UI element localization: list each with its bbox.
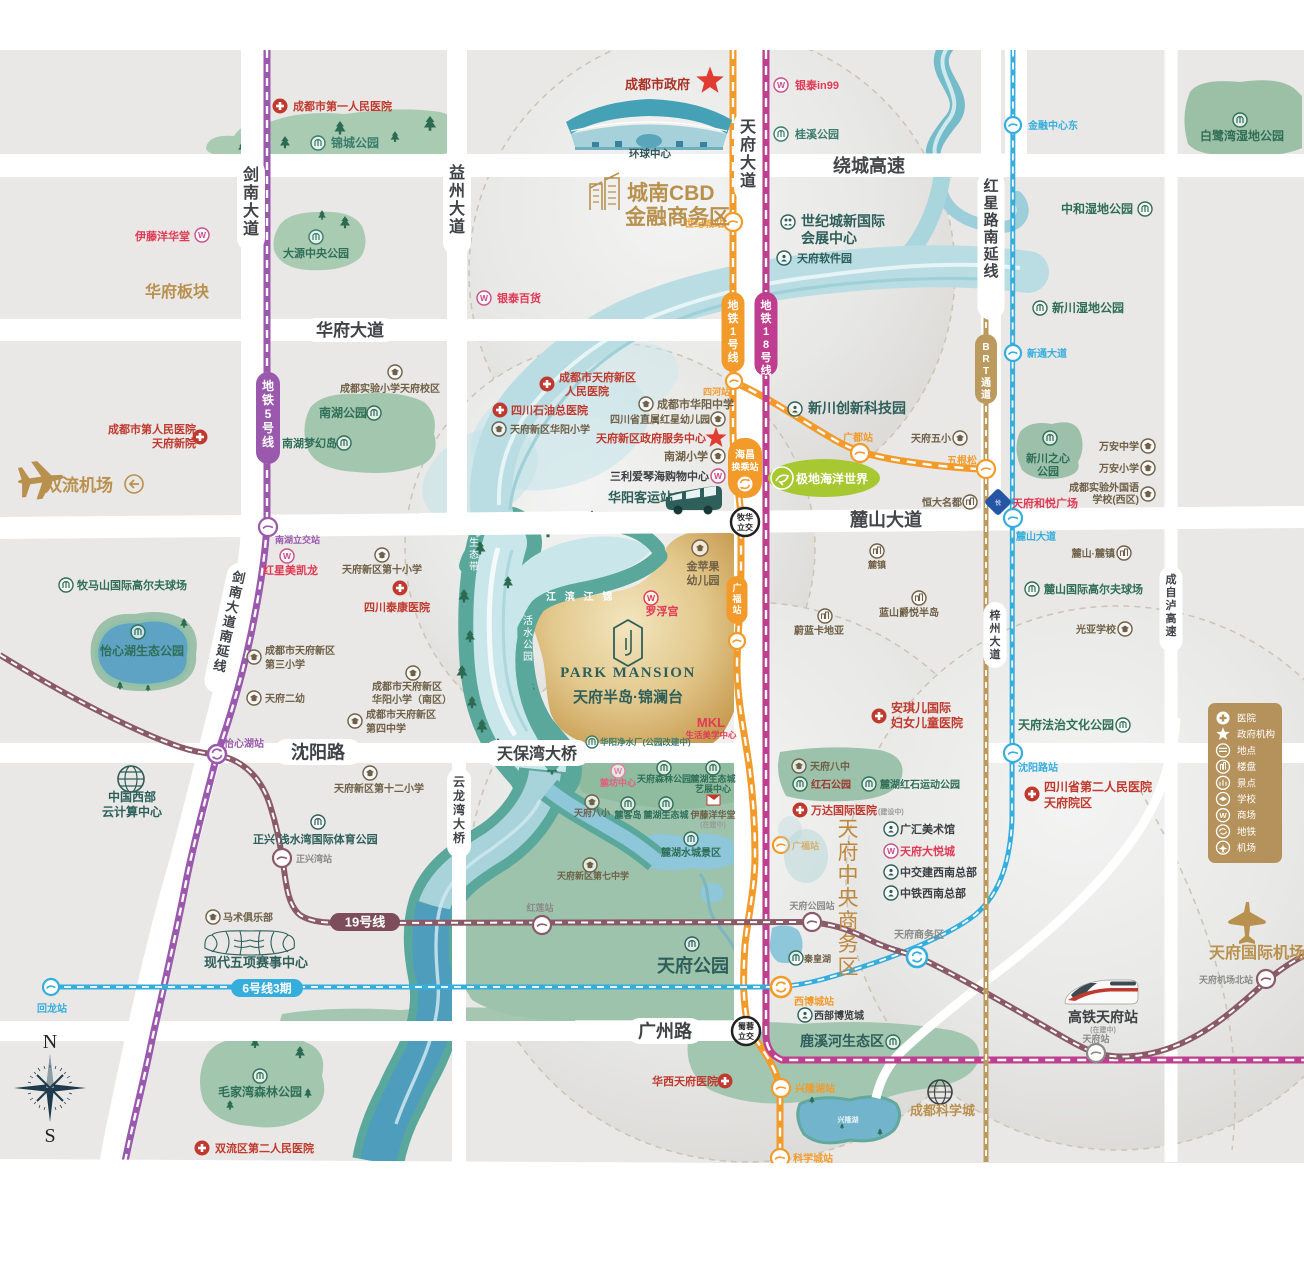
svg-text:天府新院: 天府新院 [152,436,196,450]
svg-text:新川创新科技园: 新川创新科技园 [808,400,906,416]
svg-text:W: W [647,593,656,603]
svg-text:19号线: 19号线 [345,915,385,930]
svg-text:成都实验外国语: 成都实验外国语 [1069,481,1139,494]
svg-text:怡心湖站: 怡心湖站 [224,737,264,750]
svg-text:罗浮宫: 罗浮宫 [646,604,679,618]
svg-text:桂溪公园: 桂溪公园 [794,127,839,141]
svg-text:天府五小: 天府五小 [911,432,951,445]
svg-text:广州路: 广州路 [638,1020,693,1041]
svg-text:毛家湾森林公园: 毛家湾森林公园 [218,1084,302,1099]
svg-text:机场: 机场 [1237,842,1256,854]
svg-text:立交: 立交 [738,1031,754,1041]
svg-text:天府新区第十二小学: 天府新区第十二小学 [334,782,424,795]
svg-text:江 滨 江 锦: 江 滨 江 锦 [546,590,615,603]
svg-text:成都市政府: 成都市政府 [625,77,690,92]
svg-text:天府国际机场: 天府国际机场 [1209,943,1304,962]
svg-text:蓝山爵悦半岛: 蓝山爵悦半岛 [879,606,939,619]
svg-text:成自泸高速: 成自泸高速 [1166,572,1177,638]
svg-text:麓坊中心: 麓坊中心 [599,777,636,788]
svg-text:MKL: MKL [697,715,725,730]
svg-text:天府二幼: 天府二幼 [265,692,305,705]
svg-text:回龙站: 回龙站 [37,1002,67,1015]
svg-text:(在建中): (在建中) [700,820,726,829]
svg-text:金融中心东: 金融中心东 [1027,119,1078,132]
svg-text:麓湖生态城: 麓湖生态城 [689,773,735,784]
svg-text:生态带: 生态带 [469,536,479,573]
svg-text:成都市天府新区: 成都市天府新区 [372,680,442,693]
svg-text:S: S [44,1125,55,1147]
svg-text:第四中学: 第四中学 [366,722,406,735]
svg-text:云计算中心: 云计算中心 [102,804,162,819]
svg-text:环球中心: 环球中心 [629,147,671,160]
svg-text:怡心湖生态公园: 怡心湖生态公园 [100,643,184,658]
svg-text:秦皇湖: 秦皇湖 [803,953,831,964]
svg-text:马术俱乐部: 马术俱乐部 [223,911,273,924]
svg-text:麓山·麓镇: 麓山·麓镇 [1072,547,1115,560]
svg-text:天府院区: 天府院区 [1044,795,1092,810]
svg-text:云龙湾大桥: 云龙湾大桥 [453,775,466,845]
svg-text:中和湿地公园: 中和湿地公园 [1061,201,1133,216]
svg-text:成都市第一人民医院: 成都市第一人民医院 [293,99,392,113]
svg-text:华阳净水厂(公园改建中): 华阳净水厂(公园改建中) [600,737,691,747]
svg-text:商场: 商场 [1237,810,1256,822]
svg-text:学校(西区): 学校(西区) [1092,493,1139,506]
svg-text:中国西部: 中国西部 [108,789,156,804]
svg-text:麓山国际高尔夫球场: 麓山国际高尔夫球场 [1044,582,1143,596]
svg-text:华府大道: 华府大道 [316,320,384,340]
svg-text:医院: 医院 [1237,713,1257,725]
svg-text:悦: 悦 [995,499,1001,507]
svg-text:南湖小学: 南湖小学 [664,449,708,463]
svg-text:金融商务区: 金融商务区 [624,205,730,229]
svg-text:锦城公园: 锦城公园 [331,135,379,150]
svg-text:红星美凯龙: 红星美凯龙 [263,563,318,577]
svg-text:成都市天府新区: 成都市天府新区 [559,370,636,384]
svg-text:W: W [480,293,489,303]
svg-text:红星路南延线: 红星路南延线 [982,177,999,280]
svg-text:天府公园: 天府公园 [657,955,729,976]
svg-text:现代五项赛事中心: 现代五项赛事中心 [204,955,308,970]
svg-text:麓湖红石运动公园: 麓湖红石运动公园 [880,778,960,791]
svg-text:成都科学城: 成都科学城 [910,1103,975,1118]
svg-text:益州大道: 益州大道 [448,163,465,236]
svg-text:天府公园站: 天府公园站 [789,900,834,911]
svg-text:麓湖水城景区: 麓湖水城景区 [661,846,721,859]
svg-text:W: W [614,766,623,776]
svg-text:天府站: 天府站 [1082,1033,1109,1044]
svg-text:沈阳路: 沈阳路 [291,741,346,762]
svg-text:红石公园: 红石公园 [811,778,851,791]
svg-text:双流区第二人民医院: 双流区第二人民医院 [215,1141,314,1155]
svg-text:学校: 学校 [1237,794,1257,806]
svg-text:蜀蓉: 蜀蓉 [738,1021,755,1031]
svg-text:绕城高速: 绕城高速 [833,155,905,176]
svg-text:换乘站: 换乘站 [731,461,758,472]
svg-text:安琪儿国际: 安琪儿国际 [891,700,951,715]
svg-text:天府森林公园: 天府森林公园 [637,773,691,784]
svg-text:正兴湾站: 正兴湾站 [296,853,332,864]
svg-text:广福站: 广福站 [731,582,741,615]
svg-text:W: W [777,80,786,90]
svg-text:牧华: 牧华 [737,512,753,522]
svg-text:梓州大道: 梓州大道 [989,608,1001,661]
svg-text:麓山大道: 麓山大道 [1016,530,1056,543]
svg-text:地铁: 地铁 [1237,826,1257,838]
svg-text:四川泰康医院: 四川泰康医院 [364,600,430,614]
svg-text:生活美学中心: 生活美学中心 [685,730,737,740]
svg-text:楼盘: 楼盘 [1237,761,1257,773]
svg-text:公园: 公园 [1037,465,1059,478]
svg-text:天府软件园: 天府软件园 [797,251,852,265]
svg-text:天府新区第十小学: 天府新区第十小学 [342,563,422,576]
svg-text:中铁西南总部: 中铁西南总部 [900,886,966,900]
svg-text:立交: 立交 [737,522,753,532]
svg-text:天府八小: 天府八小 [574,807,610,818]
svg-text:科学城站: 科学城站 [793,1152,833,1165]
svg-text:华阳小学（南区）: 华阳小学（南区） [372,693,452,706]
svg-text:会展中心: 会展中心 [801,230,857,246]
svg-text:W: W [714,471,723,481]
svg-text:地点: 地点 [1237,745,1257,757]
svg-text:W: W [283,551,292,561]
svg-text:万安中学: 万安中学 [1098,440,1139,453]
svg-text:妇女儿童医院: 妇女儿童医院 [890,715,963,730]
svg-text:南湖梦幻岛: 南湖梦幻岛 [282,436,337,450]
svg-text:城南CBD: 城南CBD [627,181,715,205]
svg-text:广汇美术馆: 广汇美术馆 [900,822,955,836]
svg-text:天府新区华阳小学: 天府新区华阳小学 [510,423,590,436]
svg-text:天府新区政府服务中心: 天府新区政府服务中心 [596,431,706,445]
svg-text:幼儿园: 幼儿园 [687,573,720,587]
svg-text:成都市天府新区: 成都市天府新区 [265,644,335,657]
svg-text:麓镇: 麓镇 [867,559,886,570]
svg-text:沈阳路站: 沈阳路站 [1018,761,1058,774]
svg-text:西部博览城: 西部博览城 [814,1009,864,1022]
svg-text:鹿溪河生态区: 鹿溪河生态区 [799,1033,884,1049]
svg-text:银泰in99: 银泰in99 [795,78,839,92]
svg-text:成都市华阳中学: 成都市华阳中学 [657,397,734,411]
svg-text:兴隆湖站: 兴隆湖站 [795,1082,835,1095]
svg-text:第三小学: 第三小学 [265,658,305,671]
svg-text:N: N [43,1031,57,1053]
svg-text:伊藤洋华堂: 伊藤洋华堂 [134,229,190,243]
svg-text:天府和悦广场: 天府和悦广场 [1012,496,1078,510]
svg-text:艺展中心: 艺展中心 [695,783,731,794]
svg-text:W: W [198,230,207,240]
svg-text:天府大悦城: 天府大悦城 [900,844,955,858]
svg-text:四川省第二人民医院: 四川省第二人民医院 [1044,779,1152,794]
svg-text:西博城站: 西博城站 [794,995,834,1008]
svg-text:四川石油总医院: 四川石油总医院 [511,403,588,417]
svg-text:中交建西南总部: 中交建西南总部 [900,865,977,879]
svg-text:四河站: 四河站 [703,386,730,397]
svg-text:高铁天府站: 高铁天府站 [1068,1009,1138,1025]
svg-text:正兴·浅水湾国际体育公园: 正兴·浅水湾国际体育公园 [253,832,378,846]
svg-text:江 锦: 江 锦 [556,525,583,536]
svg-text:成都实验小学天府校区: 成都实验小学天府校区 [340,382,440,395]
svg-text:天府机场北站: 天府机场北站 [1199,974,1253,985]
svg-text:剑南大道: 剑南大道 [242,165,259,238]
svg-text:光亚学校: 光亚学校 [1075,623,1117,636]
svg-text:金苹果: 金苹果 [686,559,720,573]
svg-text:新通大道: 新通大道 [1027,347,1067,360]
svg-text:南湖立交站: 南湖立交站 [275,534,320,545]
svg-text:政府机构: 政府机构 [1237,729,1275,741]
svg-text:蔚蓝卡地亚: 蔚蓝卡地亚 [794,624,844,637]
svg-text:6号线3期: 6号线3期 [242,980,291,995]
svg-text:万达国际医院: 万达国际医院 [810,803,877,817]
svg-text:广都站: 广都站 [843,431,873,444]
svg-text:世纪城新国际: 世纪城新国际 [801,213,885,229]
svg-text:天府法治文化公园: 天府法治文化公园 [1018,717,1114,732]
svg-text:PARK MANSION: PARK MANSION [560,665,696,681]
svg-text:天府八中: 天府八中 [810,760,850,773]
svg-text:四川省直属红星幼儿园: 四川省直属红星幼儿园 [610,413,710,426]
svg-text:白鹭湾湿地公园: 白鹭湾湿地公园 [1200,128,1284,143]
svg-text:(在建中): (在建中) [1090,1025,1116,1034]
svg-text:成都市第人民医院: 成都市第人民医院 [108,422,196,436]
svg-text:天府大道: 天府大道 [740,119,757,190]
svg-text:天保湾大桥: 天保湾大桥 [497,744,578,763]
svg-text:新川湿地公园: 新川湿地公园 [1052,300,1124,315]
svg-text:天府商务区: 天府商务区 [894,928,944,941]
svg-text:牧马山国际高尔夫球场: 牧马山国际高尔夫球场 [77,578,187,592]
svg-text:华西天府医院: 华西天府医院 [652,1074,718,1088]
svg-text:天府中央商务区: 天府中央商务区 [838,818,859,979]
svg-text:五根松: 五根松 [947,454,977,467]
svg-text:麓湖生态城: 麓湖生态城 [642,809,688,820]
svg-text:极地海洋世界: 极地海洋世界 [796,471,868,486]
svg-text:天府新区第七中学: 天府新区第七中学 [557,870,629,881]
svg-text:海昌: 海昌 [735,448,755,461]
svg-text:双流机场: 双流机场 [45,475,113,495]
svg-text:银泰百货: 银泰百货 [497,291,541,305]
svg-text:人民医院: 人民医院 [565,384,609,398]
svg-text:恒大名都: 恒大名都 [922,496,962,509]
svg-text:麓客岛: 麓客岛 [613,809,641,820]
svg-text:伊藤洋华堂: 伊藤洋华堂 [689,809,735,820]
svg-text:华府板块: 华府板块 [145,282,210,301]
svg-text:W: W [1219,811,1227,820]
svg-text:万安小学: 万安小学 [1098,462,1139,475]
svg-text:三利爱琴海购物中心: 三利爱琴海购物中心 [610,469,709,483]
svg-text:红莲站: 红莲站 [526,902,553,913]
svg-text:华阳客运站: 华阳客运站 [608,490,673,505]
svg-text:景点: 景点 [1237,778,1257,789]
svg-text:成都市天府新区: 成都市天府新区 [366,708,436,721]
svg-text:新川之心: 新川之心 [1026,451,1070,465]
svg-text:南湖公园: 南湖公园 [319,405,367,420]
svg-text:(建设中): (建设中) [878,807,904,816]
svg-text:W: W [887,846,896,856]
svg-text:天府半岛·锦澜台: 天府半岛·锦澜台 [573,688,683,706]
svg-text:麓山大道: 麓山大道 [849,509,922,530]
svg-text:兴隆湖: 兴隆湖 [838,1115,859,1124]
svg-text:大源中央公园: 大源中央公园 [283,246,349,260]
